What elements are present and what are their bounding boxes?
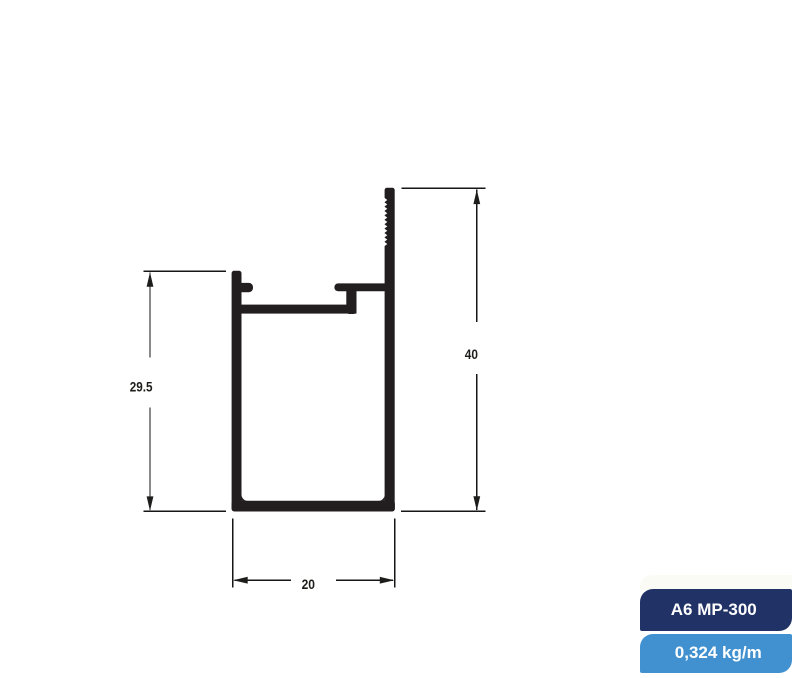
svg-text:20: 20: [302, 576, 316, 592]
svg-text:40: 40: [465, 346, 478, 362]
svg-text:29.5: 29.5: [130, 379, 153, 395]
